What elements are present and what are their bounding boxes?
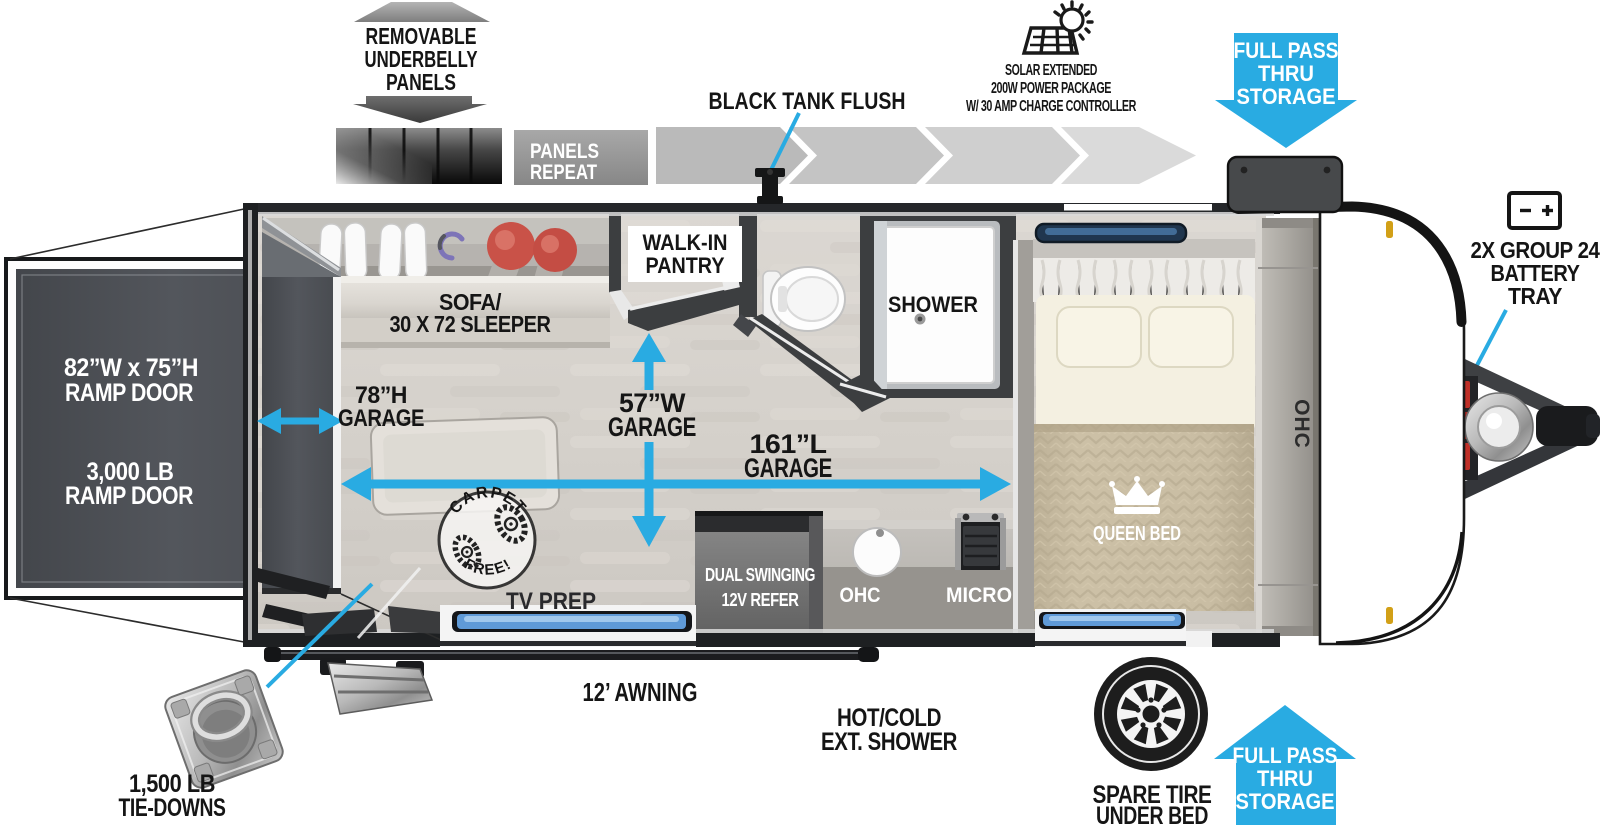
svg-text:W/ 30 AMP CHARGE CONTROLLER: W/ 30 AMP CHARGE CONTROLLER — [966, 98, 1137, 115]
svg-text:QUEEN BED: QUEEN BED — [1093, 523, 1181, 545]
svg-text:OHC: OHC — [1290, 399, 1313, 449]
svg-text:THRU: THRU — [1258, 61, 1314, 86]
svg-text:PANELS: PANELS — [386, 69, 456, 95]
svg-text:STORAGE: STORAGE — [1237, 84, 1336, 109]
svg-text:PANTRY: PANTRY — [646, 253, 725, 278]
svg-text:EXT. SHOWER: EXT. SHOWER — [821, 728, 957, 756]
svg-text:BLACK TANK FLUSH: BLACK TANK FLUSH — [709, 88, 906, 115]
svg-text:TIE-DOWNS: TIE-DOWNS — [119, 794, 226, 822]
svg-text:OHC: OHC — [840, 584, 881, 607]
svg-text:PANELS: PANELS — [530, 140, 599, 163]
svg-text:GARAGE: GARAGE — [338, 405, 424, 432]
svg-text:TRAY: TRAY — [1508, 283, 1562, 309]
svg-text:12’ AWNING: 12’ AWNING — [583, 677, 698, 707]
svg-text:DUAL SWINGING: DUAL SWINGING — [705, 565, 815, 585]
svg-text:REPEAT: REPEAT — [530, 161, 597, 184]
svg-text:GARAGE: GARAGE — [744, 453, 832, 483]
svg-text:SOLAR EXTENDED: SOLAR EXTENDED — [1005, 62, 1097, 79]
svg-text:STORAGE: STORAGE — [1236, 789, 1335, 814]
svg-text:FULL PASS: FULL PASS — [1233, 743, 1338, 768]
svg-text:MICRO: MICRO — [946, 584, 1012, 607]
svg-text:THRU: THRU — [1257, 766, 1313, 791]
svg-text:12V REFER: 12V REFER — [722, 590, 799, 610]
svg-text:GARAGE: GARAGE — [608, 412, 696, 442]
svg-text:30 X 72 SLEEPER: 30 X 72 SLEEPER — [390, 311, 552, 337]
svg-text:SHOWER: SHOWER — [888, 292, 978, 317]
svg-text:RAMP DOOR: RAMP DOOR — [65, 482, 193, 510]
svg-text:82”W x 75”H: 82”W x 75”H — [64, 354, 198, 382]
svg-text:WALK-IN: WALK-IN — [643, 230, 728, 255]
svg-text:200W POWER PACKAGE: 200W POWER PACKAGE — [991, 80, 1112, 97]
svg-text:RAMP DOOR: RAMP DOOR — [65, 379, 193, 407]
svg-text:TV PREP: TV PREP — [506, 588, 596, 615]
svg-text:FULL PASS: FULL PASS — [1234, 38, 1339, 63]
svg-text:UNDER BED: UNDER BED — [1096, 802, 1208, 825]
